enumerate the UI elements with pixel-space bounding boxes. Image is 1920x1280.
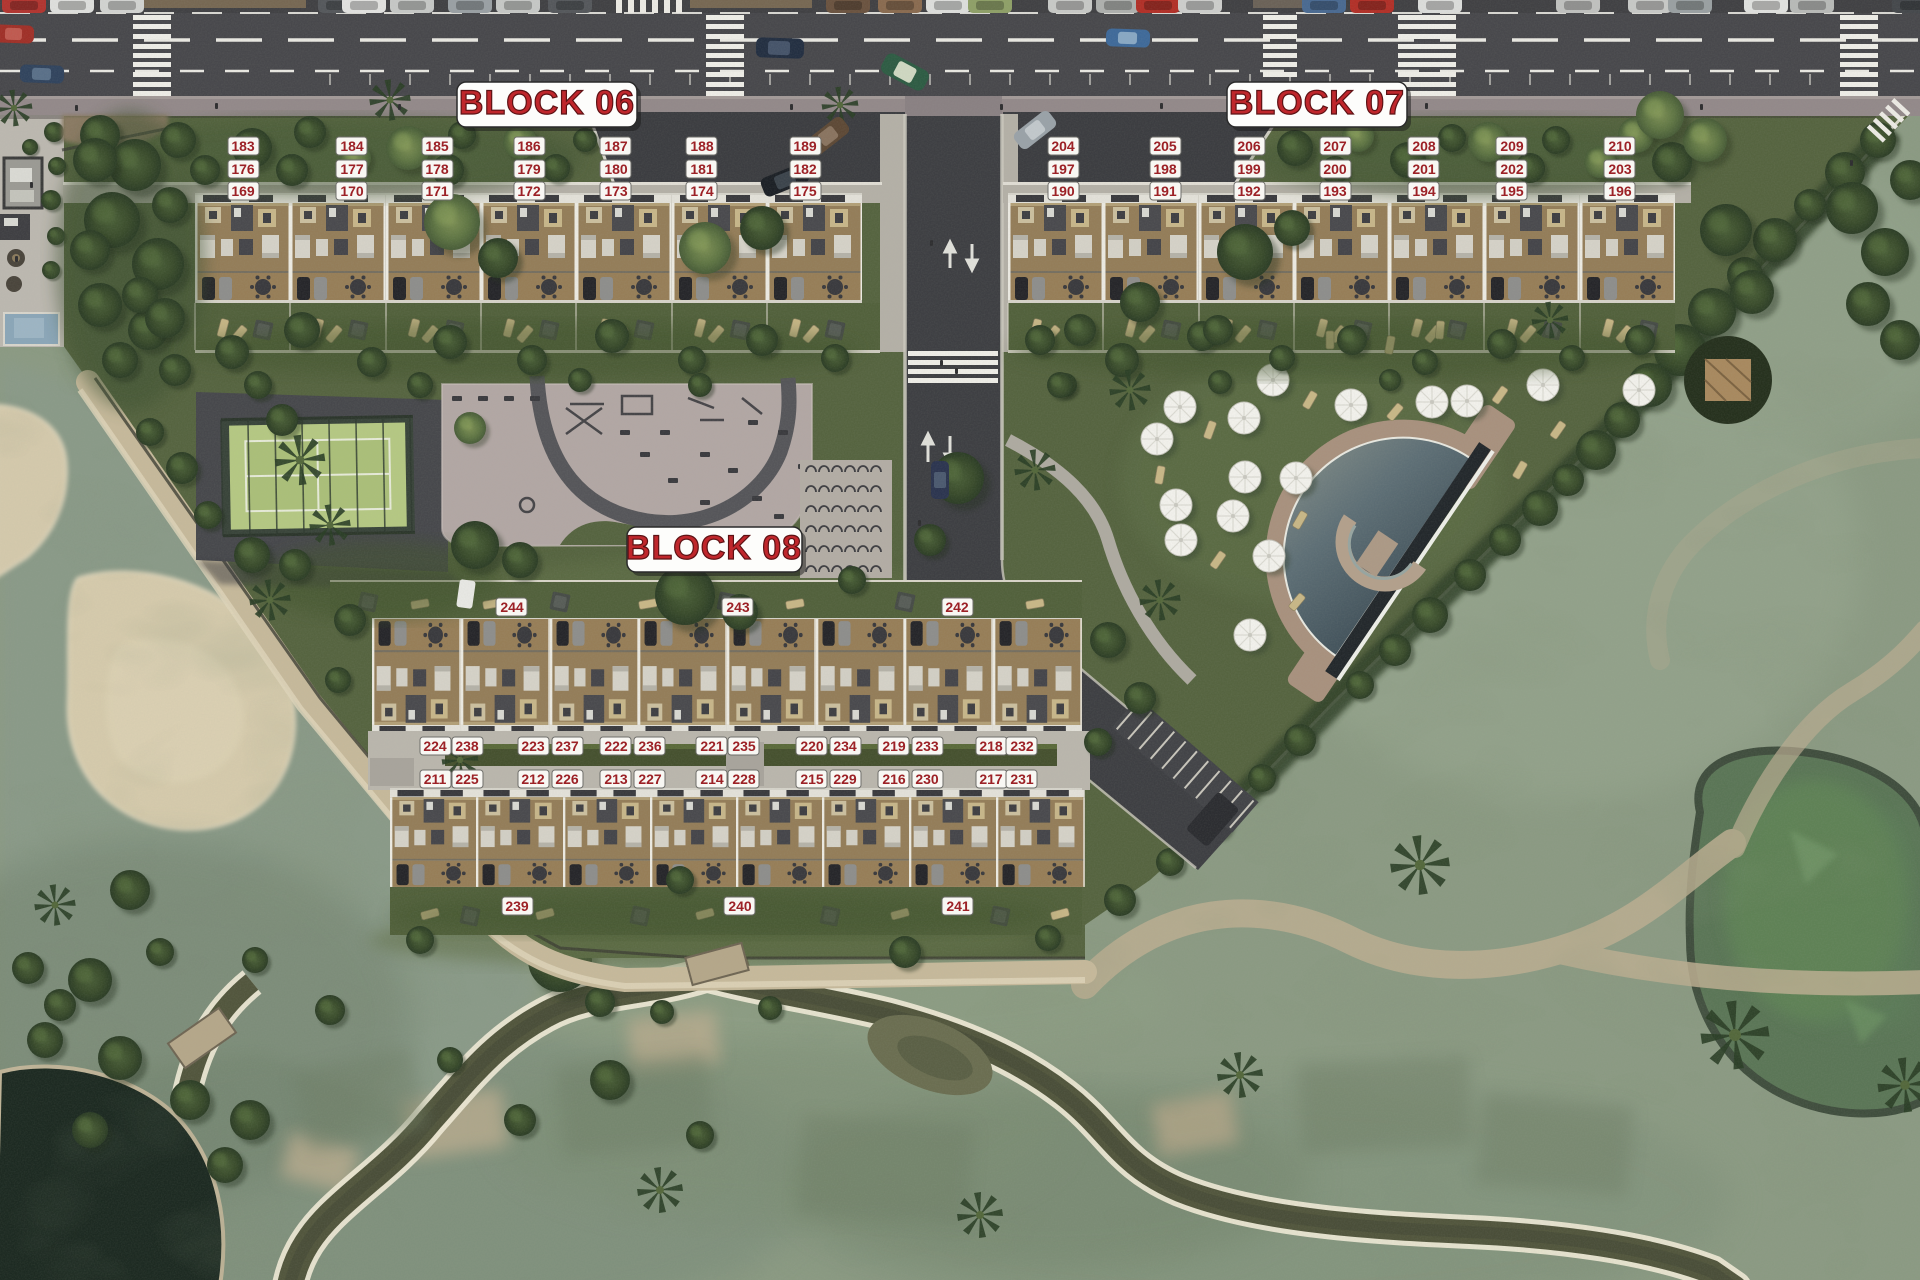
svg-text:221: 221 xyxy=(700,738,724,754)
svg-text:211: 211 xyxy=(424,771,447,787)
svg-text:209: 209 xyxy=(1500,138,1524,154)
svg-text:207: 207 xyxy=(1323,138,1347,154)
svg-text:236: 236 xyxy=(638,738,662,754)
svg-text:203: 203 xyxy=(1608,161,1632,177)
svg-text:195: 195 xyxy=(1500,183,1524,199)
svg-text:217: 217 xyxy=(979,771,1003,787)
svg-text:188: 188 xyxy=(690,138,714,154)
svg-text:187: 187 xyxy=(604,138,628,154)
svg-text:230: 230 xyxy=(915,771,939,787)
svg-text:215: 215 xyxy=(800,771,824,787)
svg-text:182: 182 xyxy=(793,161,817,177)
svg-text:174: 174 xyxy=(690,183,714,199)
svg-text:234: 234 xyxy=(833,738,857,754)
svg-text:186: 186 xyxy=(517,138,541,154)
svg-text:193: 193 xyxy=(1323,183,1347,199)
svg-text:225: 225 xyxy=(455,771,479,787)
svg-text:170: 170 xyxy=(340,183,364,199)
svg-text:239: 239 xyxy=(505,898,529,914)
svg-text:219: 219 xyxy=(882,738,906,754)
svg-text:179: 179 xyxy=(517,161,541,177)
svg-text:216: 216 xyxy=(882,771,906,787)
svg-text:183: 183 xyxy=(231,138,255,154)
svg-text:177: 177 xyxy=(340,161,364,177)
svg-text:191: 191 xyxy=(1153,183,1177,199)
svg-text:213: 213 xyxy=(604,771,628,787)
svg-text:231: 231 xyxy=(1010,771,1034,787)
svg-text:224: 224 xyxy=(423,738,447,754)
svg-text:185: 185 xyxy=(425,138,449,154)
svg-text:184: 184 xyxy=(340,138,364,154)
svg-text:206: 206 xyxy=(1237,138,1261,154)
svg-text:238: 238 xyxy=(455,738,479,754)
svg-text:243: 243 xyxy=(726,599,750,615)
svg-text:199: 199 xyxy=(1237,161,1261,177)
svg-text:227: 227 xyxy=(638,771,662,787)
svg-text:BLOCK 08: BLOCK 08 xyxy=(626,529,802,567)
svg-text:223: 223 xyxy=(521,738,545,754)
svg-text:169: 169 xyxy=(231,183,255,199)
svg-text:196: 196 xyxy=(1608,183,1632,199)
svg-text:175: 175 xyxy=(793,183,817,199)
svg-text:229: 229 xyxy=(833,771,857,787)
svg-text:190: 190 xyxy=(1051,183,1075,199)
svg-text:197: 197 xyxy=(1051,161,1075,177)
svg-text:244: 244 xyxy=(500,599,524,615)
svg-text:242: 242 xyxy=(945,599,969,615)
svg-text:205: 205 xyxy=(1153,138,1177,154)
svg-text:204: 204 xyxy=(1051,138,1075,154)
svg-text:200: 200 xyxy=(1323,161,1347,177)
svg-text:BLOCK 07: BLOCK 07 xyxy=(1229,84,1405,122)
svg-text:226: 226 xyxy=(555,771,579,787)
svg-text:194: 194 xyxy=(1412,183,1436,199)
svg-text:240: 240 xyxy=(728,898,752,914)
svg-text:233: 233 xyxy=(915,738,939,754)
svg-text:171: 171 xyxy=(425,183,449,199)
svg-text:208: 208 xyxy=(1412,138,1436,154)
svg-text:222: 222 xyxy=(604,738,628,754)
svg-text:235: 235 xyxy=(732,738,756,754)
svg-text:172: 172 xyxy=(517,183,541,199)
svg-text:210: 210 xyxy=(1608,138,1632,154)
svg-text:214: 214 xyxy=(700,771,724,787)
svg-text:180: 180 xyxy=(604,161,628,177)
svg-text:BLOCK 06: BLOCK 06 xyxy=(459,84,635,122)
svg-text:237: 237 xyxy=(555,738,579,754)
svg-text:232: 232 xyxy=(1010,738,1034,754)
svg-text:241: 241 xyxy=(946,898,970,914)
svg-text:212: 212 xyxy=(521,771,545,787)
svg-text:198: 198 xyxy=(1153,161,1177,177)
svg-text:176: 176 xyxy=(231,161,255,177)
svg-text:173: 173 xyxy=(604,183,628,199)
svg-text:181: 181 xyxy=(690,161,714,177)
svg-text:178: 178 xyxy=(425,161,449,177)
svg-text:192: 192 xyxy=(1237,183,1261,199)
svg-text:201: 201 xyxy=(1412,161,1436,177)
svg-text:220: 220 xyxy=(800,738,824,754)
svg-text:218: 218 xyxy=(979,738,1003,754)
svg-text:202: 202 xyxy=(1500,161,1524,177)
svg-text:189: 189 xyxy=(793,138,817,154)
svg-text:228: 228 xyxy=(732,771,756,787)
